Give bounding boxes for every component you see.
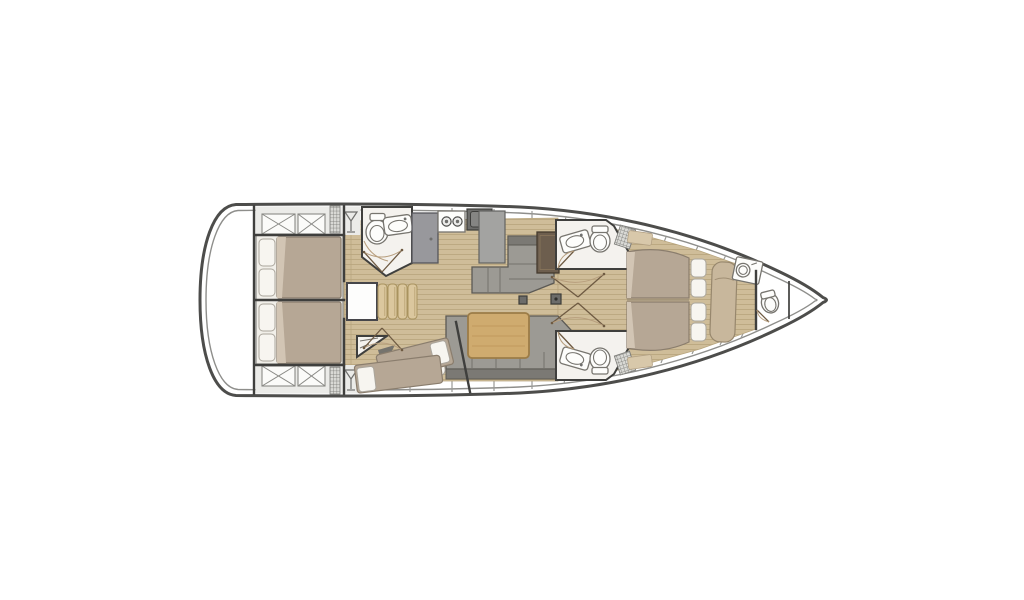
cockpit-locker-hatch [262, 366, 295, 386]
companionway-steps [378, 284, 417, 319]
pillow [691, 259, 706, 277]
double-bed-mattress [277, 302, 341, 363]
toilet-tank [370, 214, 385, 221]
pillow [259, 334, 275, 361]
engine-hatch [347, 283, 377, 320]
settee-backrest [508, 236, 538, 245]
sink-icon [383, 214, 413, 236]
island-bed-mattress-starboard [627, 250, 689, 298]
cockpit-locker-hatch [298, 366, 325, 386]
toilet-icon [590, 348, 610, 370]
companionway [347, 283, 417, 320]
pillow [691, 323, 706, 341]
pillow [259, 269, 275, 296]
refrigerator-cabinet [412, 213, 438, 263]
pillow [259, 304, 275, 331]
toilet-icon [590, 230, 610, 252]
aft-cabin-walls [255, 207, 344, 394]
pillow [259, 239, 275, 266]
cockpit-grate-icon [330, 367, 340, 394]
yacht-layout-canvas [0, 0, 1024, 600]
boat-floor-plan [0, 0, 1024, 600]
galley-counter [479, 211, 505, 263]
cockpit-locker-hatch [298, 214, 325, 234]
pillow [356, 366, 376, 392]
aft-cabin-port [256, 300, 343, 364]
pillow [691, 303, 706, 321]
toilet-tank [592, 226, 608, 233]
forward-head-starboard [556, 220, 636, 269]
cockpit-grate-icon [330, 206, 340, 233]
aft-cabin-starboard [256, 235, 343, 300]
toilet-tank [592, 368, 608, 375]
forward-head-port [556, 331, 636, 380]
cockpit-locker-hatch [262, 214, 295, 234]
island-bed-mattress-port [627, 302, 689, 350]
owner-vanity-sink [732, 257, 763, 285]
double-bed-mattress [277, 237, 341, 298]
pillow [691, 279, 706, 297]
